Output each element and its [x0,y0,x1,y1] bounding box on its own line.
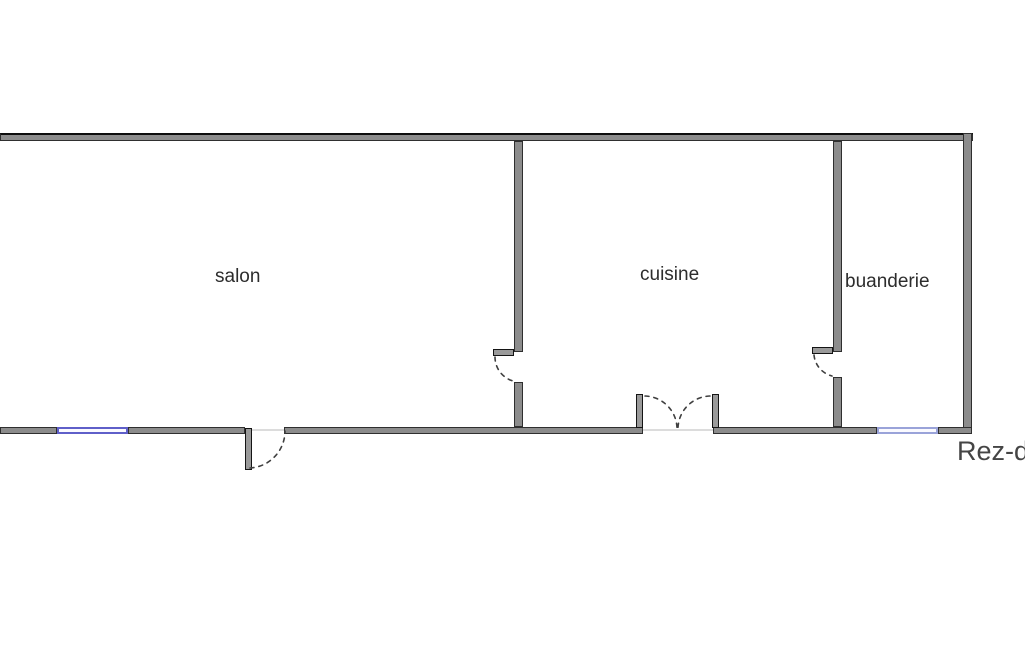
wall-salon-cuisine-lower [514,382,523,427]
french-door-right-leaf [712,394,719,428]
wall-bottom-segment-2 [128,427,245,434]
room-label-buanderie: buanderie [845,271,930,293]
wall-exterior-right [963,133,972,434]
wall-bottom-segment-5 [938,427,972,434]
wall-cuisine-buanderie-lower [833,377,842,427]
salon-exterior-door-arc [250,431,285,468]
french-door-right-arc [678,396,710,428]
salon-exterior-door-leaf [245,428,252,470]
wall-exterior-top [0,133,973,141]
wall-bottom-segment-3 [284,427,643,434]
floor-plan: salon cuisine buanderie Rez-d [0,0,1025,650]
salon-cuisine-door-leaf [493,349,514,356]
cuisine-buanderie-door-arc [814,355,832,376]
floor-label: Rez-d [957,436,1025,467]
wall-bottom-segment-1 [0,427,57,434]
cuisine-buanderie-door-leaf [812,347,833,354]
french-door-threshold [643,429,713,431]
wall-bottom-segment-4 [713,427,877,434]
french-door-left-arc [645,396,677,428]
room-label-cuisine: cuisine [640,264,699,286]
salon-cuisine-door-arc [495,357,513,381]
door-swing-arcs [0,0,1025,650]
salon-window [57,427,128,434]
room-label-salon: salon [215,266,260,288]
french-door-left-leaf [636,394,643,428]
wall-cuisine-buanderie-upper [833,141,842,352]
wall-salon-cuisine-upper [514,141,523,352]
buanderie-window [877,427,938,434]
